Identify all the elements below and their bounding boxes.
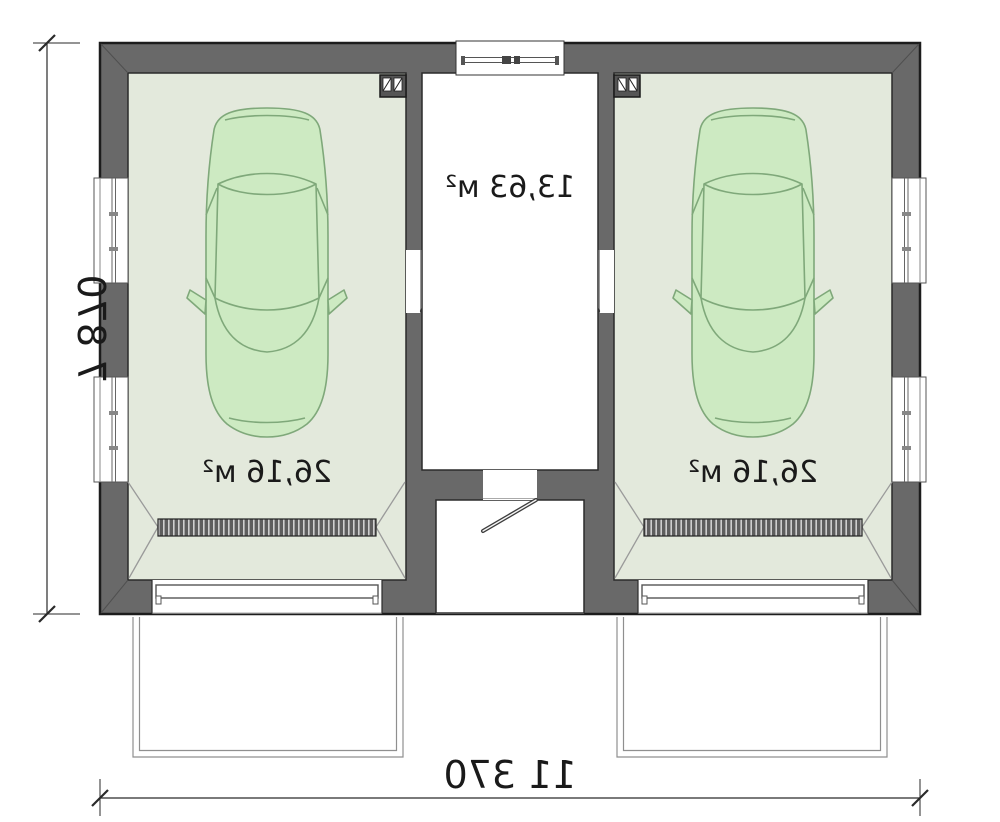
- top-window: [456, 41, 564, 75]
- side-window: [94, 178, 128, 283]
- central-room-floor: [422, 73, 598, 470]
- car-top-view: [187, 108, 347, 437]
- dimension-label-width: 11 370: [444, 753, 577, 797]
- central-room: [422, 73, 598, 470]
- garage-door: [152, 580, 382, 614]
- dimension-label-depth: 7 870: [69, 275, 113, 384]
- floor-plan-canvas: 26,16 м² 13,63 м² 26,16 м² 11 370 7 870: [0, 0, 1000, 822]
- area-label-central-room: 13,63 м²: [445, 170, 575, 205]
- garage-left-half: [94, 44, 452, 757]
- side-window: [94, 377, 128, 482]
- area-label-right-garage: 26,16 м²: [688, 455, 818, 490]
- vent-duct-block: [380, 75, 406, 97]
- driveway-apron: [133, 617, 403, 757]
- floor-plan-page: 26,16 м² 13,63 м² 26,16 м² 11 370 7 870: [0, 0, 1000, 822]
- garage-right-half: [568, 44, 926, 757]
- area-label-left-garage: 26,16 м²: [202, 455, 332, 490]
